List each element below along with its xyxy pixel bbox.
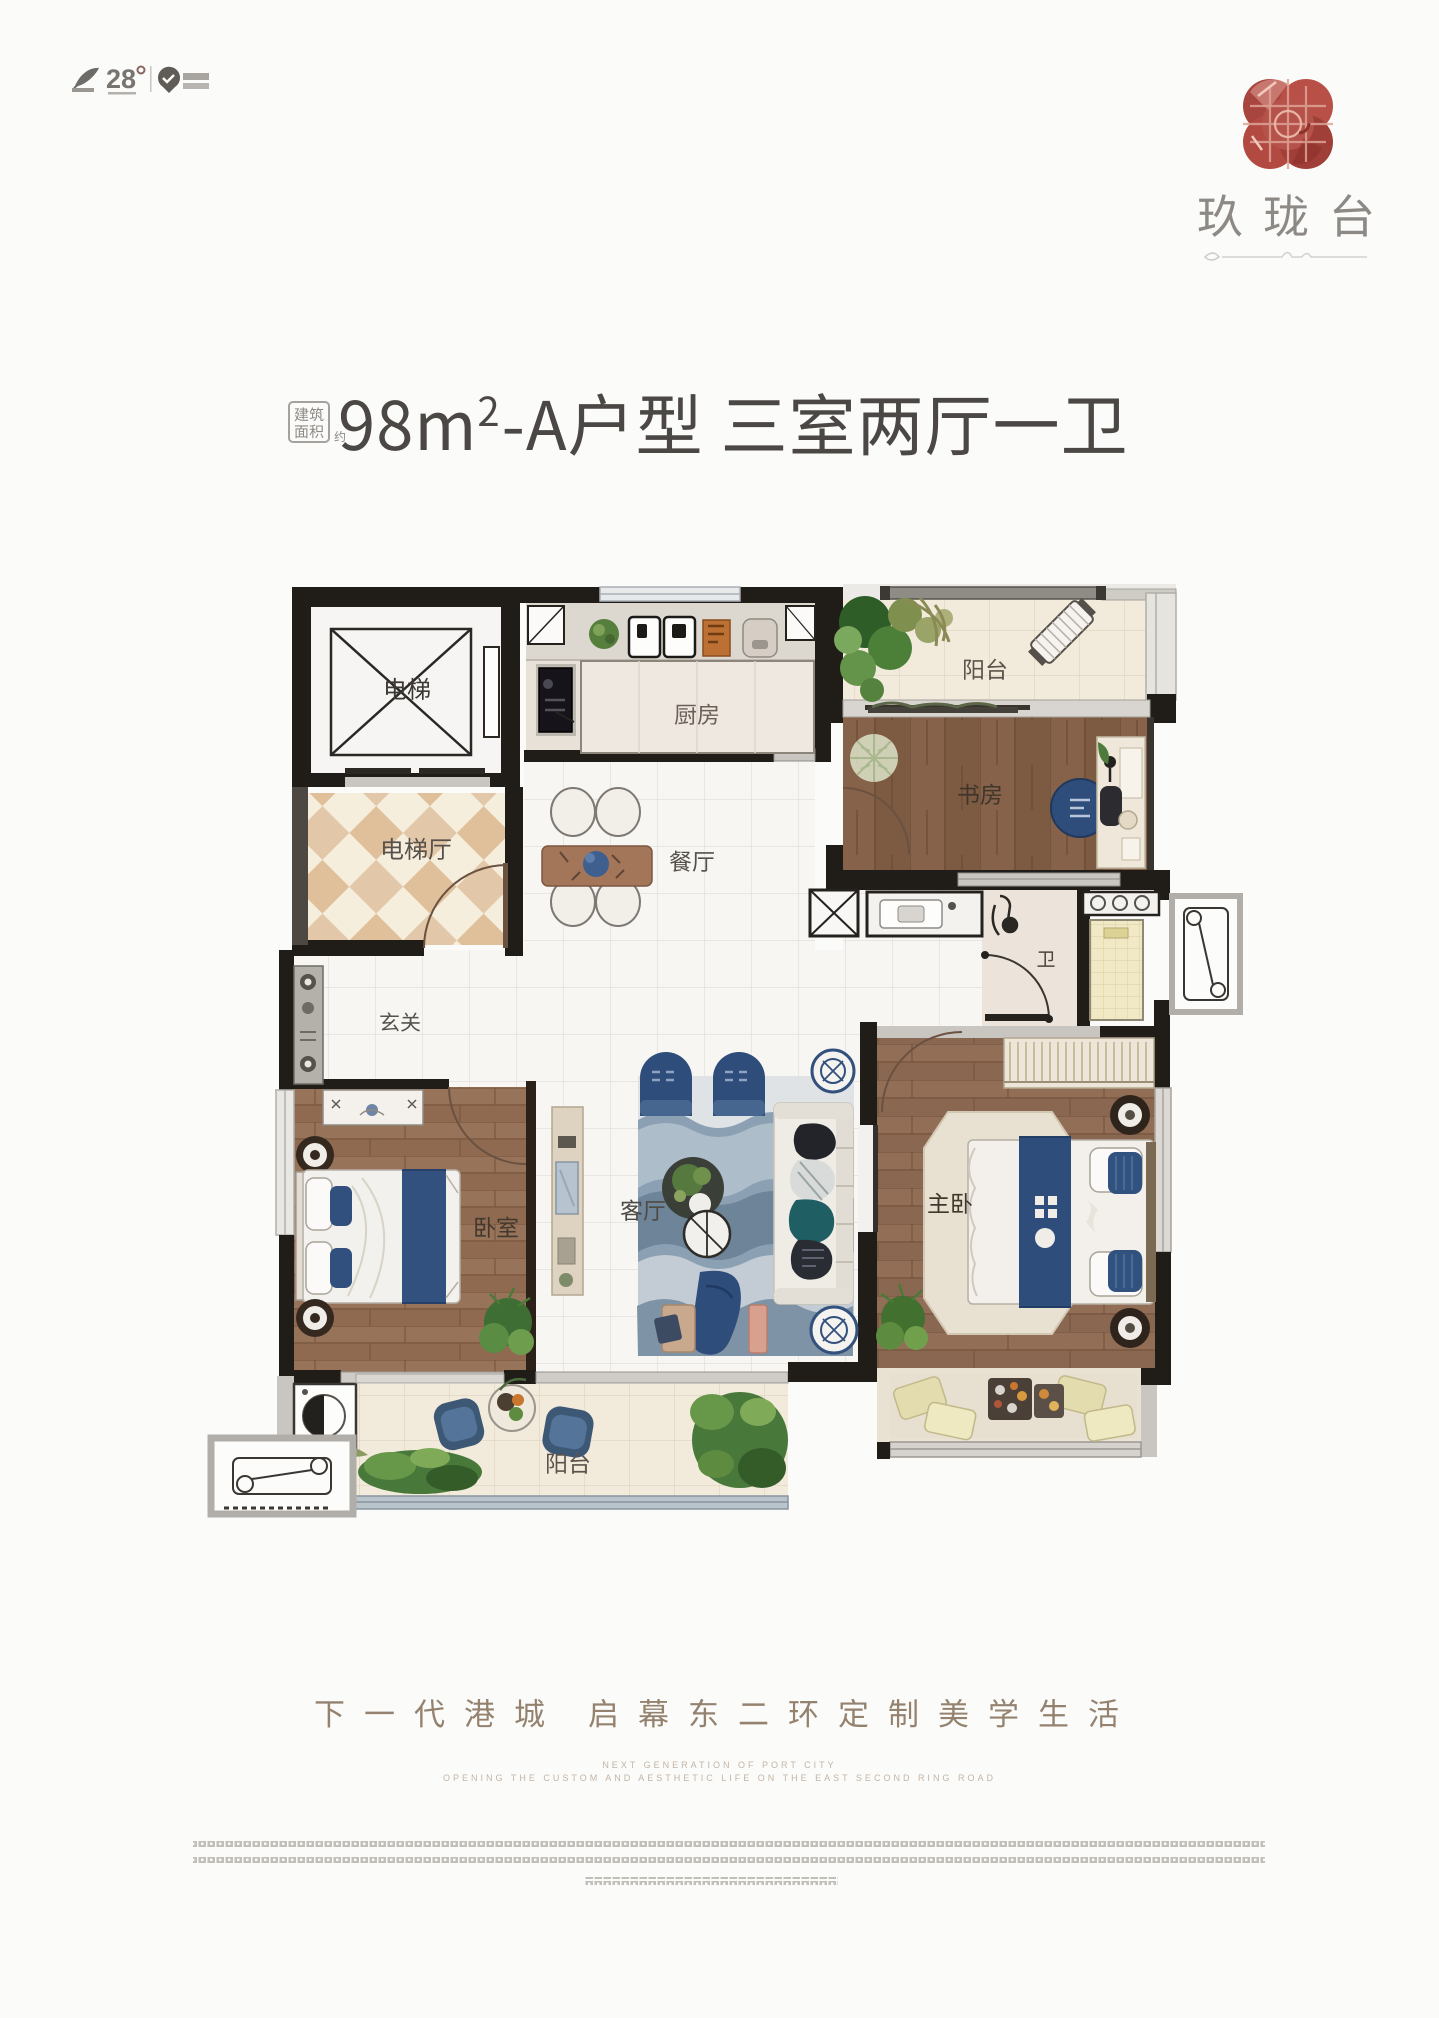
svg-text:28: 28 (106, 64, 136, 94)
